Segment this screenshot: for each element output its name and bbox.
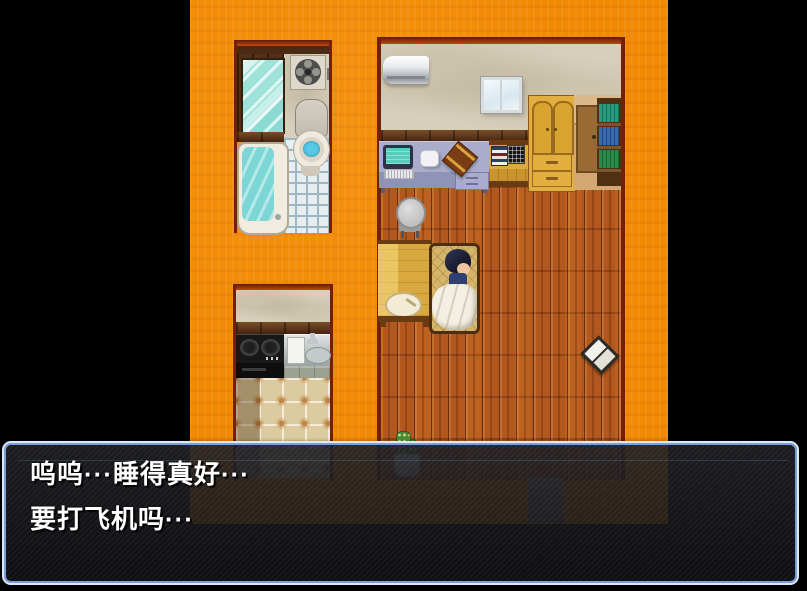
ac-vent xyxy=(387,76,425,79)
bookshelf xyxy=(597,98,621,186)
bed[interactable] xyxy=(429,243,480,334)
window-divider xyxy=(500,80,502,110)
long-table-leg xyxy=(380,322,386,327)
stove-drawer-handle xyxy=(242,368,266,371)
stove-drawer xyxy=(236,363,284,378)
kitchen-sink xyxy=(284,334,330,366)
fan-cord xyxy=(327,68,329,80)
sink-cutting-board xyxy=(287,337,305,364)
plate xyxy=(385,292,422,318)
dialogue-line-2: 要打飞机吗··· xyxy=(30,497,771,542)
kitchen-trim xyxy=(236,322,330,334)
bedroom-roof-edge xyxy=(377,37,625,44)
bookshelf-books xyxy=(599,127,619,145)
chair-leg xyxy=(416,231,419,238)
kitchen-wall xyxy=(236,290,330,324)
keyboard xyxy=(384,169,414,179)
bathtub-water xyxy=(242,147,274,221)
long-table xyxy=(378,244,431,316)
stove-burner xyxy=(261,339,280,356)
chair-back xyxy=(396,197,426,229)
toilet-water xyxy=(303,141,320,157)
wardrobe-drawer xyxy=(532,171,572,187)
bathroom-mirror xyxy=(241,58,285,134)
white-blanket xyxy=(432,284,477,330)
computer-monitor xyxy=(383,145,413,169)
game-screen: 呜呜···睡得真好··· 要打飞机吗··· xyxy=(0,0,807,591)
dialogue-line-1: 呜呜···睡得真好··· xyxy=(30,452,771,497)
bookshelf-books xyxy=(599,104,619,122)
side-table-base xyxy=(489,181,530,187)
fan-blade xyxy=(304,60,312,68)
bathroom-right-edge xyxy=(329,40,332,233)
bathroom-trim xyxy=(237,132,284,142)
sink-faucet-base xyxy=(307,339,318,344)
fan-hub xyxy=(305,69,311,75)
wardrobe-drawer-handle xyxy=(546,161,558,164)
drawer-handle xyxy=(466,183,478,185)
wardrobe-knob xyxy=(554,128,557,131)
mirror-glass-streaks xyxy=(243,60,283,132)
air-conditioner xyxy=(383,56,429,84)
wardrobe-drawer xyxy=(532,154,572,171)
bathtub xyxy=(237,142,289,235)
counter-base xyxy=(284,366,330,378)
wardrobe-door xyxy=(532,101,553,155)
fan-blade xyxy=(312,68,320,76)
bookshelf-shelf xyxy=(597,169,621,172)
checkered-basket xyxy=(507,145,525,164)
dialogue-window[interactable]: 呜呜···睡得真好··· 要打飞机吗··· xyxy=(2,441,799,585)
ventilation-fan xyxy=(290,55,326,90)
wardrobe xyxy=(528,95,576,192)
bookshelf-books xyxy=(599,150,619,168)
bedroom xyxy=(377,37,625,480)
mouse xyxy=(420,150,439,167)
bathroom xyxy=(234,40,332,233)
bathroom-wall-top-strip xyxy=(237,46,329,54)
office-chair xyxy=(392,197,426,238)
fan-blade xyxy=(296,68,304,76)
wardrobe-drawer-handle xyxy=(546,177,558,180)
drawer-handle xyxy=(466,177,478,179)
kitchen-stove xyxy=(236,334,284,363)
fan-blade xyxy=(304,76,312,84)
bookshelf-shelf xyxy=(597,146,621,149)
fan-rotor xyxy=(295,59,321,85)
monitor-screen xyxy=(386,148,410,164)
spoon xyxy=(405,298,417,307)
window xyxy=(481,77,522,113)
desk-leg xyxy=(381,188,385,193)
toilet-base xyxy=(301,166,320,176)
stove-knobs xyxy=(266,357,280,360)
bathtub-drain xyxy=(275,214,281,220)
bedroom-right-edge xyxy=(621,37,625,480)
cabinet-unit xyxy=(574,95,621,190)
sink-basin xyxy=(305,347,331,364)
wardrobe-knob xyxy=(546,128,549,131)
chair-leg xyxy=(401,231,404,238)
cabinet-knob xyxy=(592,135,596,139)
book-stack xyxy=(491,146,508,166)
bookshelf-shelf xyxy=(597,123,621,126)
stove-burner xyxy=(240,339,259,356)
toilet xyxy=(293,130,330,169)
